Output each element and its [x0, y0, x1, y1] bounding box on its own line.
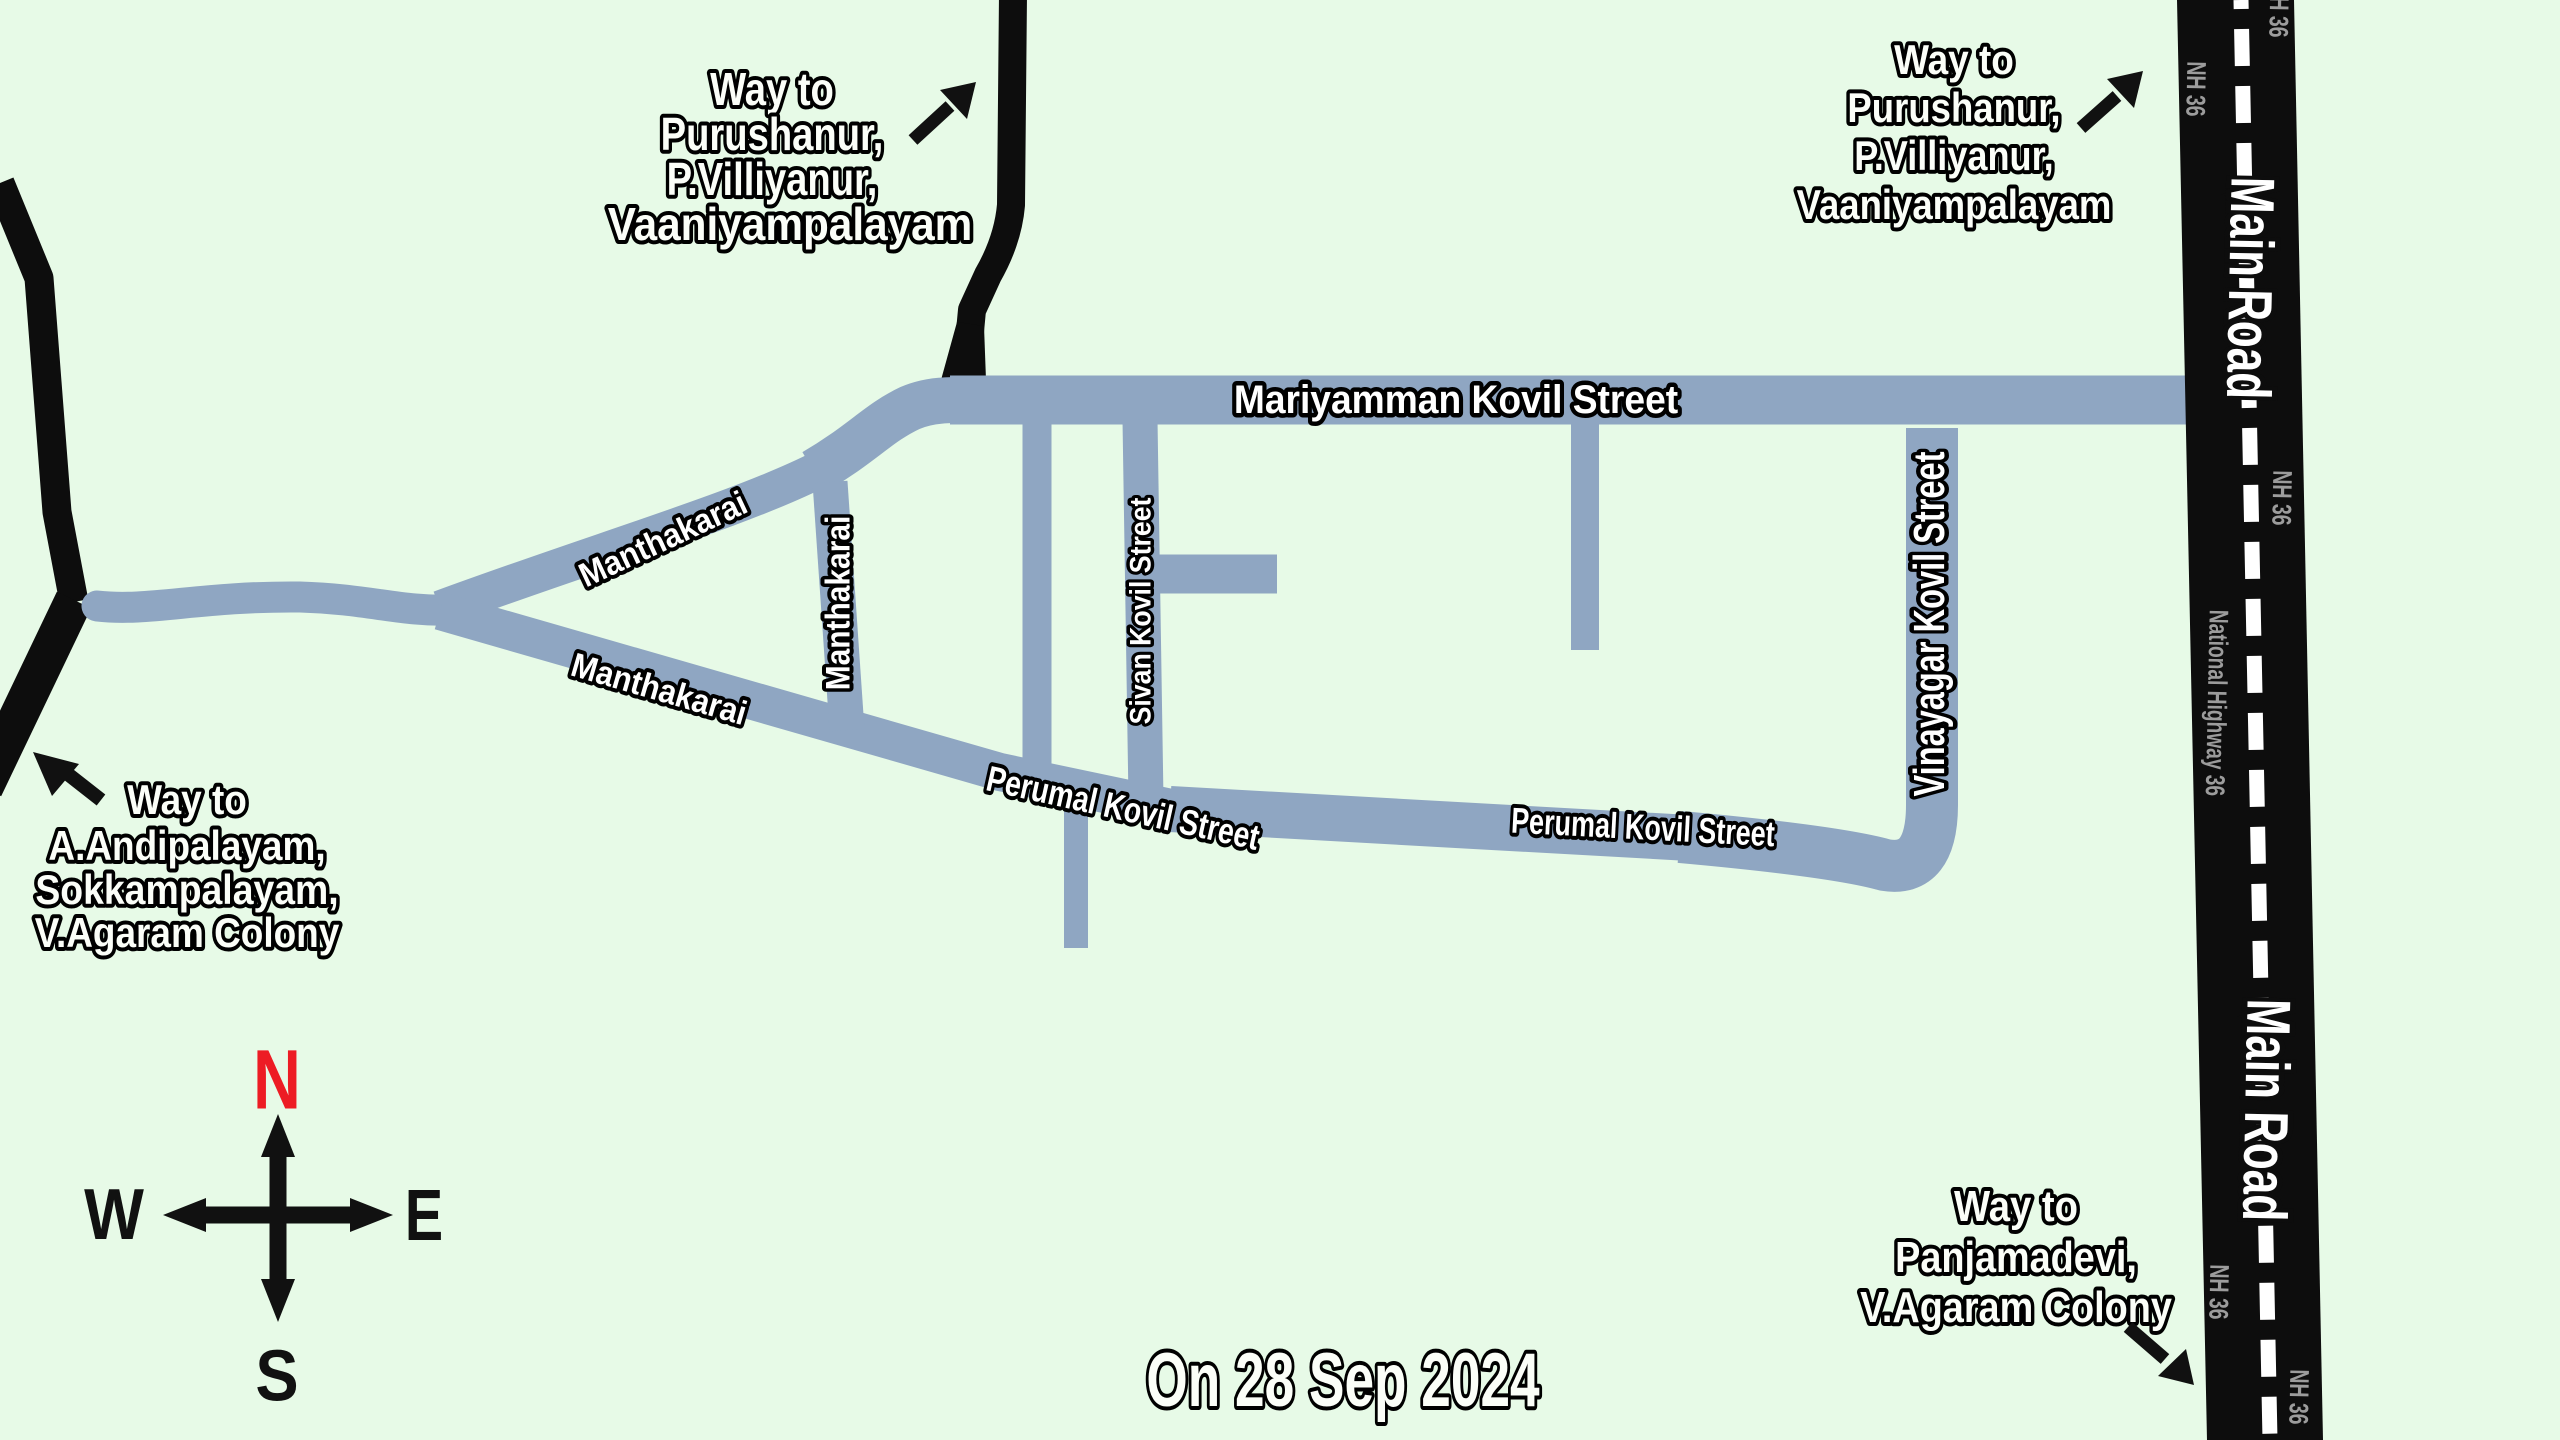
svg-text:V.Agaram Colony: V.Agaram Colony — [1860, 1282, 2172, 1331]
svg-text:Mariyamman Kovil Street: Mariyamman Kovil Street — [1234, 378, 1678, 423]
svg-text:Sokkampalayam,: Sokkampalayam, — [35, 867, 338, 913]
svg-text:N: N — [253, 1033, 301, 1127]
svg-text:A.Andipalayam,: A.Andipalayam, — [48, 823, 325, 870]
svg-text:Vaaniyampalayam: Vaaniyampalayam — [608, 199, 973, 250]
svg-text:P.Villiyanur,: P.Villiyanur, — [667, 154, 878, 205]
svg-text:Way to: Way to — [1894, 37, 2014, 84]
svg-text:Vinayagar Kovil Street: Vinayagar Kovil Street — [1906, 451, 1955, 796]
svg-text:Purushanur,: Purushanur, — [1847, 85, 2060, 132]
svg-text:E: E — [405, 1175, 443, 1256]
svg-text:On 28 Sep 2024: On 28 Sep 2024 — [1146, 1338, 1540, 1423]
svg-text:Panjamadevi,: Panjamadevi, — [1895, 1232, 2137, 1281]
svg-text:Main Road: Main Road — [2229, 998, 2303, 1222]
svg-text:NH 36: NH 36 — [2284, 1369, 2315, 1425]
svg-text:P.Villiyanur,: P.Villiyanur, — [1854, 134, 2053, 180]
svg-text:Manthakarai: Manthakarai — [819, 516, 857, 691]
svg-text:NH 36: NH 36 — [2264, 0, 2295, 38]
svg-text:Way to: Way to — [127, 777, 247, 824]
svg-text:V.Agaram Colony: V.Agaram Colony — [35, 910, 340, 957]
svg-text:NH 36: NH 36 — [2267, 470, 2298, 526]
svg-text:Way to: Way to — [1954, 1182, 2078, 1231]
svg-text:Main Road: Main Road — [2213, 176, 2287, 400]
svg-text:W: W — [84, 1175, 144, 1255]
svg-text:NH 36: NH 36 — [2204, 1264, 2235, 1320]
svg-text:Way to: Way to — [710, 64, 834, 115]
svg-text:S: S — [255, 1336, 298, 1417]
svg-text:Purushanur,: Purushanur, — [661, 109, 884, 160]
svg-text:NH 36: NH 36 — [2181, 61, 2212, 117]
svg-text:Vaaniyampalayam: Vaaniyampalayam — [1797, 182, 2112, 229]
svg-text:Sivan Kovil Street: Sivan Kovil Street — [1124, 497, 1158, 724]
svg-text:National Highway 36: National Highway 36 — [2200, 610, 2234, 797]
